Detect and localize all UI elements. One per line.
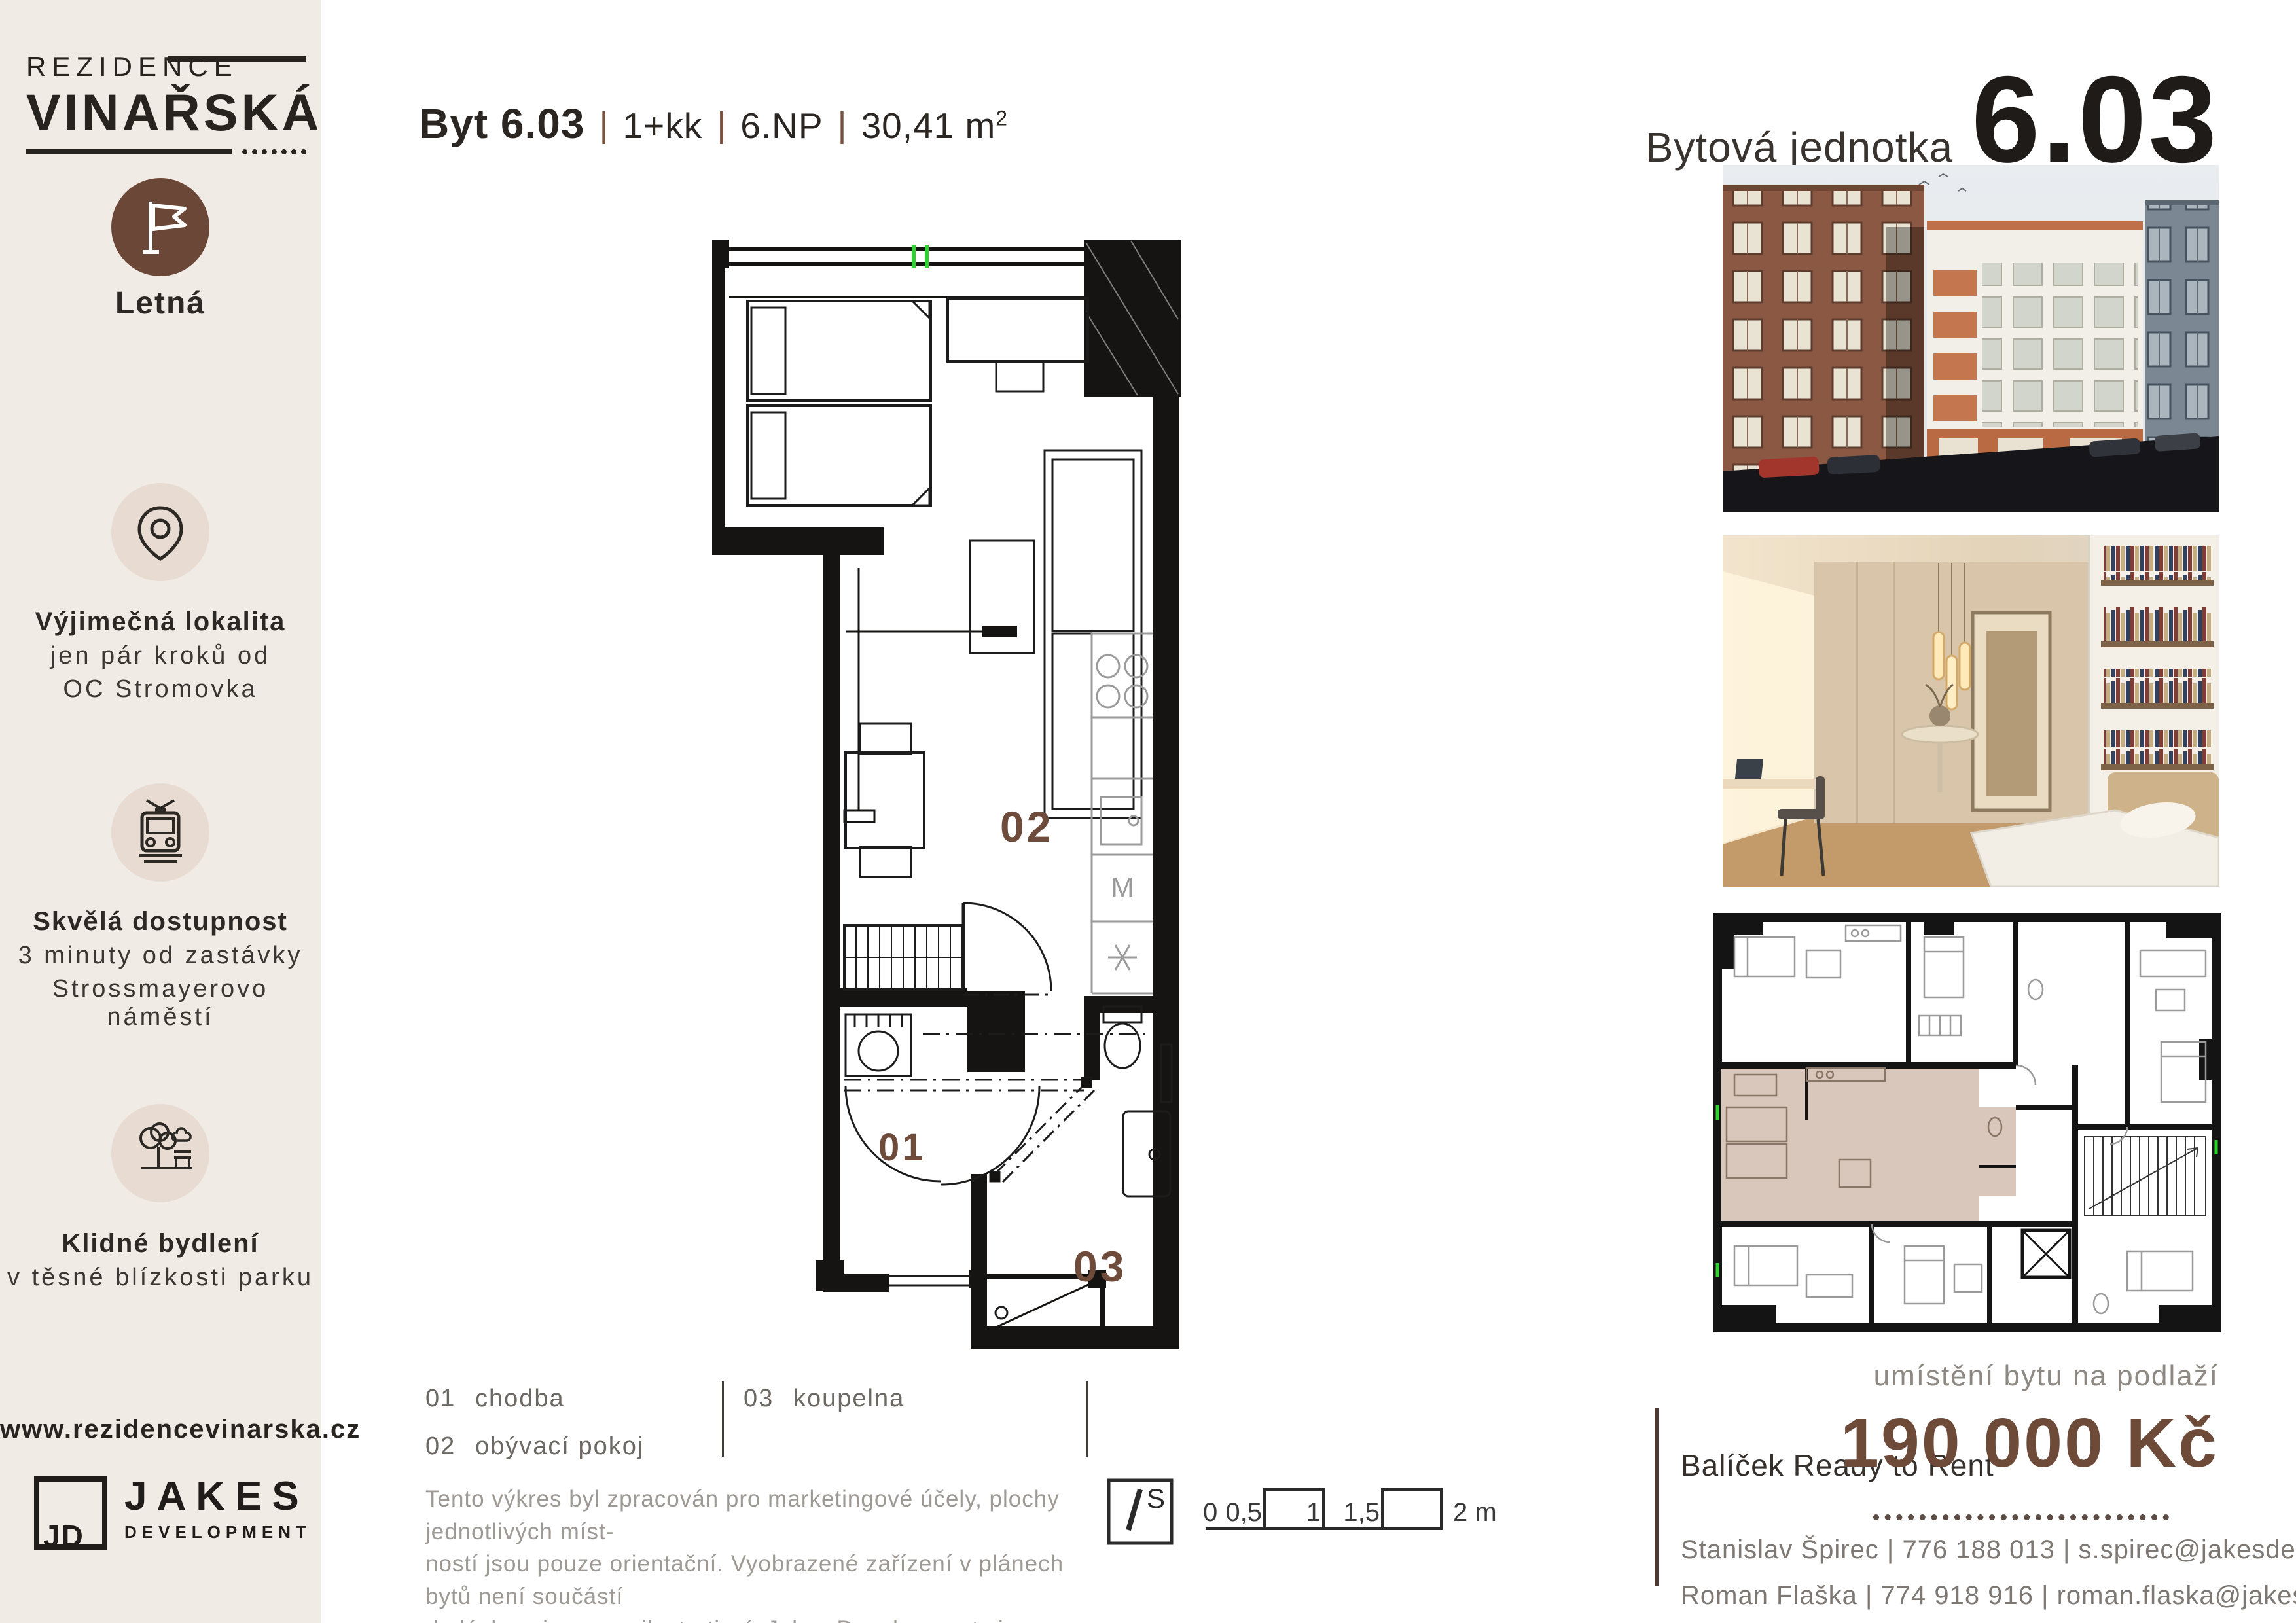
room-label-bath: 03 (1073, 1242, 1126, 1291)
compass: S (1106, 1476, 1175, 1547)
desk (948, 298, 1088, 391)
wardrobe (844, 925, 962, 990)
legend-column-1: 01chodba 02obývací pokoj (425, 1385, 644, 1480)
developer-subtitle: DEVELOPMENT (124, 1522, 312, 1543)
brand-line2: VINAŘSKÁ (26, 82, 306, 143)
contact-row: Stanislav Špirec | 776 188 013 | s.spire… (1681, 1535, 2296, 1565)
title-separator: | (838, 105, 847, 145)
toilet-icon (1103, 1007, 1141, 1068)
feature-location-text: Výjimečná lokalita jen pár kroků od OC S… (0, 607, 321, 704)
svg-text:0,5: 0,5 (1225, 1498, 1262, 1527)
legend-divider (722, 1381, 724, 1457)
disclaimer: Tento výkres byl zpracován pro marketing… (425, 1483, 1080, 1623)
floor-overview-plan (1708, 911, 2225, 1343)
svg-text:1: 1 (1306, 1498, 1321, 1527)
apartment-number: Byt 6.03 (419, 99, 584, 148)
legend-item: 02obývací pokoj (425, 1433, 644, 1461)
contact-row: Roman Flaška | 774 918 916 | roman.flask… (1681, 1581, 2296, 1611)
washer-label: M (1111, 872, 1134, 902)
feature-line: Strossmayerovo náměstí (0, 975, 321, 1031)
legend-item: 03koupelna (744, 1385, 905, 1413)
svg-text:2 m: 2 m (1453, 1498, 1497, 1527)
feature-line: 3 minuty od zastávky (0, 942, 321, 970)
park-icon (111, 1104, 209, 1202)
brand-logo: REZIDENCE VINAŘSKÁ (26, 51, 306, 156)
feature-title: Klidné bydlení (0, 1229, 321, 1258)
feature-park (0, 1104, 321, 1202)
scale-bar: 0 0,5 1 1,5 2 m (1199, 1476, 1526, 1550)
apartment-layout: 1+kk (623, 105, 703, 147)
tram-icon (111, 783, 209, 882)
feature-line: jen pár kroků od (0, 642, 321, 670)
dining-table (846, 724, 924, 877)
developer-logo: JD JAKES DEVELOPMENT (34, 1476, 312, 1550)
dishwasher-icon (1108, 945, 1137, 970)
compass-needle-icon (1128, 1489, 1140, 1530)
unit-heading-label: Bytová jednotka (1645, 123, 1953, 171)
contact-name: Roman Flaška (1681, 1581, 1865, 1610)
feature-location (0, 483, 321, 581)
building-left (1723, 185, 1924, 476)
legend-item: 01chodba (425, 1385, 644, 1413)
feature-transport-text: Skvělá dostupnost 3 minuty od zastávky S… (0, 907, 321, 1031)
feature-title: Výjimečná lokalita (0, 607, 321, 637)
feature-title: Skvělá dostupnost (0, 907, 321, 936)
floor-plan: M (694, 234, 1204, 1373)
unit-heading-number: 6.03 (1971, 63, 2219, 176)
title-separator: | (599, 105, 608, 145)
beds (747, 301, 931, 505)
offer-price: 190 000 Kč (1840, 1408, 2219, 1478)
website-url: www.rezidencevinarska.cz (0, 1415, 321, 1444)
room-label-hall: 01 (878, 1126, 926, 1169)
feature-letna-title: Letná (0, 285, 321, 321)
compass-label: S (1147, 1483, 1165, 1514)
contact-phone: 774 918 916 (1881, 1581, 2034, 1610)
feature-title: Letná (0, 285, 321, 321)
building-center (1927, 221, 2143, 476)
feature-park-text: Klidné bydlení v těsné blízkosti parku (0, 1229, 321, 1292)
stove-icon (1097, 655, 1119, 677)
location-caption: umístění bytu na podlaží (1874, 1360, 2219, 1393)
legend-column-2: 03koupelna (744, 1385, 905, 1433)
brand-underline (26, 149, 306, 156)
building-photo (1723, 165, 2219, 512)
room-label-living: 02 (1000, 802, 1053, 851)
contact-name: Stanislav Špirec (1681, 1535, 1887, 1564)
entrance-door (889, 1276, 971, 1285)
apartment-floor: 6.NP (740, 105, 823, 147)
sidebar: REZIDENCE VINAŘSKÁ Letná (0, 0, 321, 1623)
feature-line: OC Stromovka (0, 675, 321, 704)
apartment-area: 30,41 m2 (861, 105, 1009, 147)
brochure-page: REZIDENCE VINAŘSKÁ Letná (0, 0, 2296, 1623)
sink-icon (1101, 797, 1141, 844)
offer-dotted-divider (1873, 1514, 2169, 1520)
location-pin-icon (111, 483, 209, 581)
window-light (1723, 571, 1814, 844)
feature-line: v těsné blízkosti parku (0, 1264, 321, 1292)
developer-monogram: JD (34, 1476, 107, 1550)
offer-rule (1655, 1408, 1659, 1586)
title-separator: | (717, 105, 726, 145)
washbasin (846, 1014, 911, 1076)
contact-email: s.spirec@jakesdevelopment.cz (2079, 1535, 2296, 1564)
interior-photo (1723, 535, 2219, 887)
door-living (963, 903, 1051, 995)
svg-text:0: 0 (1203, 1498, 1217, 1527)
svg-text:1,5: 1,5 (1343, 1498, 1380, 1527)
contact-email: roman.flaska@jakesdevelopment.cz (2057, 1581, 2296, 1610)
feature-transport (0, 783, 321, 882)
developer-name: JAKES (124, 1476, 312, 1517)
feature-letna (0, 178, 321, 276)
apartment-title: Byt 6.03 | 1+kk | 6.NP | 30,41 m2 (419, 99, 1008, 148)
kitchen (1092, 633, 1153, 993)
contact-phone: 776 188 013 (1902, 1535, 2054, 1564)
brand-rule (168, 56, 306, 62)
unit-heading: Bytová jednotka 6.03 (1645, 63, 2219, 176)
flag-icon (111, 178, 209, 276)
legend-divider (1086, 1381, 1088, 1457)
